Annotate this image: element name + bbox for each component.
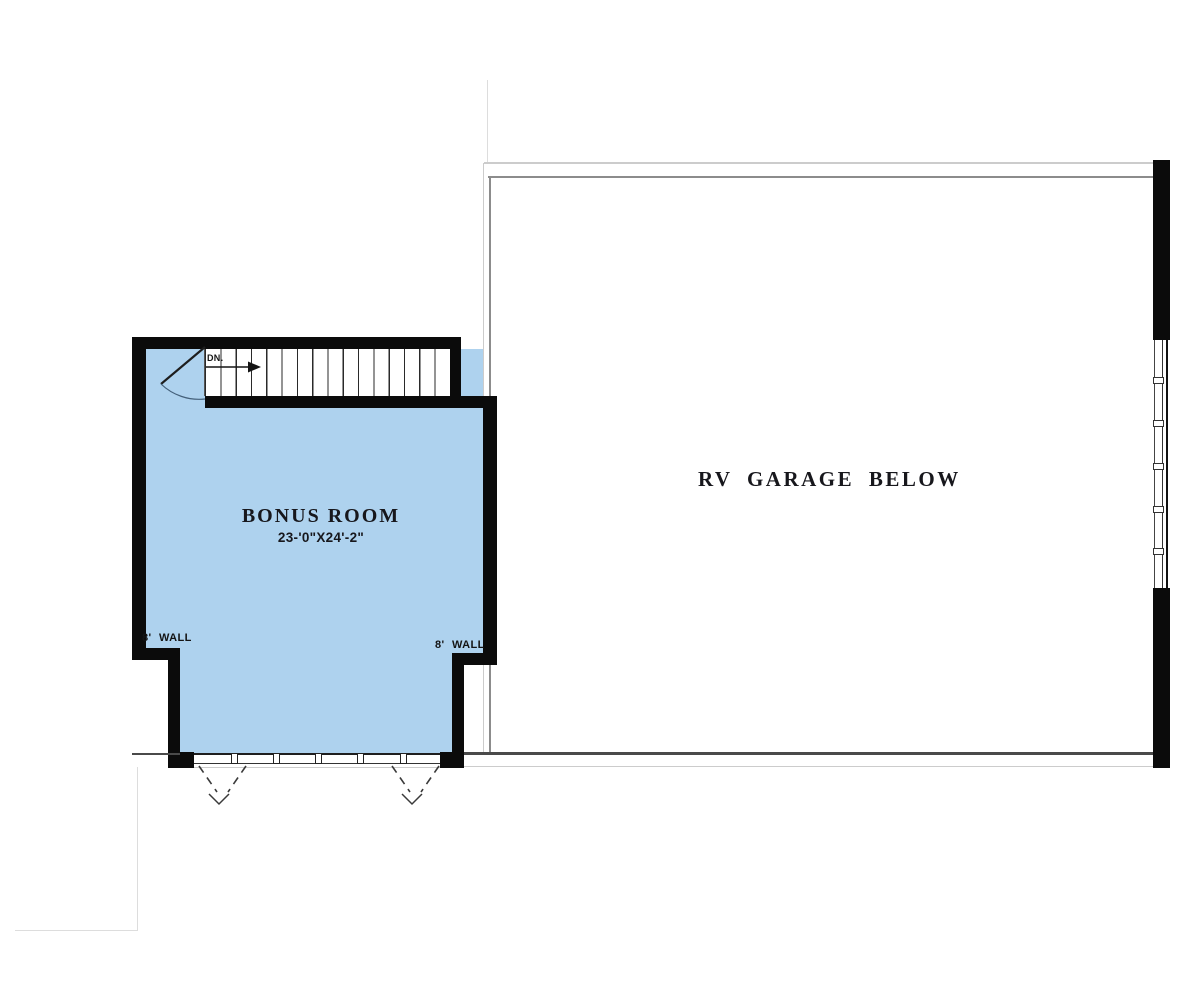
stair-door-jamb bbox=[204, 349, 205, 396]
bonus-top-wall bbox=[132, 337, 461, 349]
wall-label-left: 8' WALL bbox=[142, 632, 192, 644]
garage-outline-top-inner bbox=[488, 176, 1155, 178]
window-mullion bbox=[1153, 377, 1164, 384]
window-end-cap-left bbox=[180, 752, 194, 768]
dn-label: DN. bbox=[207, 353, 223, 363]
reference-line-lower-left-vertical bbox=[137, 767, 138, 931]
casement-swing-right bbox=[392, 766, 439, 804]
window-mullion bbox=[273, 753, 280, 764]
casement-swing-left bbox=[199, 766, 246, 804]
window-mullion bbox=[357, 753, 364, 764]
window-mullion bbox=[400, 753, 407, 764]
window-mullion bbox=[1153, 420, 1164, 427]
garage-right-wall-upper bbox=[1153, 160, 1170, 340]
window-mullion bbox=[1153, 463, 1164, 470]
stair-treads bbox=[205, 349, 450, 396]
stair-bottom-wall bbox=[205, 396, 497, 408]
bonus-room-label: BONUS ROOM bbox=[221, 505, 421, 528]
reference-line-lower-left-horizontal bbox=[15, 930, 138, 931]
window-mullion bbox=[231, 753, 238, 764]
garage-outline-bottom-inner bbox=[458, 752, 1154, 755]
window-mullion bbox=[1153, 506, 1164, 513]
wall-label-right: 8' WALL bbox=[435, 639, 481, 651]
window-end-cap-right bbox=[440, 752, 454, 768]
bonus-left-wall bbox=[132, 337, 146, 660]
bonus-right-wall bbox=[483, 396, 497, 665]
window-line bbox=[1166, 340, 1168, 588]
window-mullion bbox=[1153, 548, 1164, 555]
bonus-room-dimensions: 23-'0"X24'-2" bbox=[221, 530, 421, 545]
rv-garage-label: RV GARAGE BELOW bbox=[698, 467, 958, 492]
sill-line-left bbox=[132, 753, 182, 755]
garage-outline-top-outer bbox=[484, 162, 1168, 164]
bonus-room-fill-bay bbox=[180, 654, 452, 755]
bonus-lower-left-wall bbox=[168, 648, 180, 768]
window-mullion bbox=[315, 753, 322, 764]
window-sill-outer bbox=[180, 767, 452, 768]
bonus-lower-right-wall bbox=[452, 653, 464, 768]
floor-plan: RV GARAGE BELOW bbox=[0, 0, 1200, 999]
garage-outline-bottom-outer bbox=[452, 766, 1170, 767]
reference-line-top bbox=[487, 80, 488, 163]
garage-right-wall-lower bbox=[1153, 588, 1170, 768]
